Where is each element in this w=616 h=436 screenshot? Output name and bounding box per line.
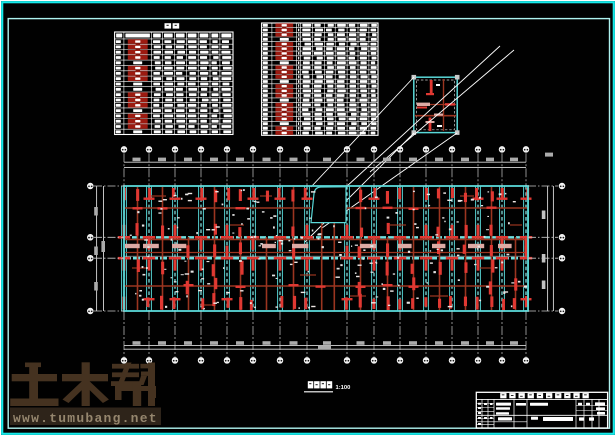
- svg-text:www.tumubang.net: www.tumubang.net: [13, 411, 158, 426]
- svg-text:1:100: 1:100: [336, 385, 351, 391]
